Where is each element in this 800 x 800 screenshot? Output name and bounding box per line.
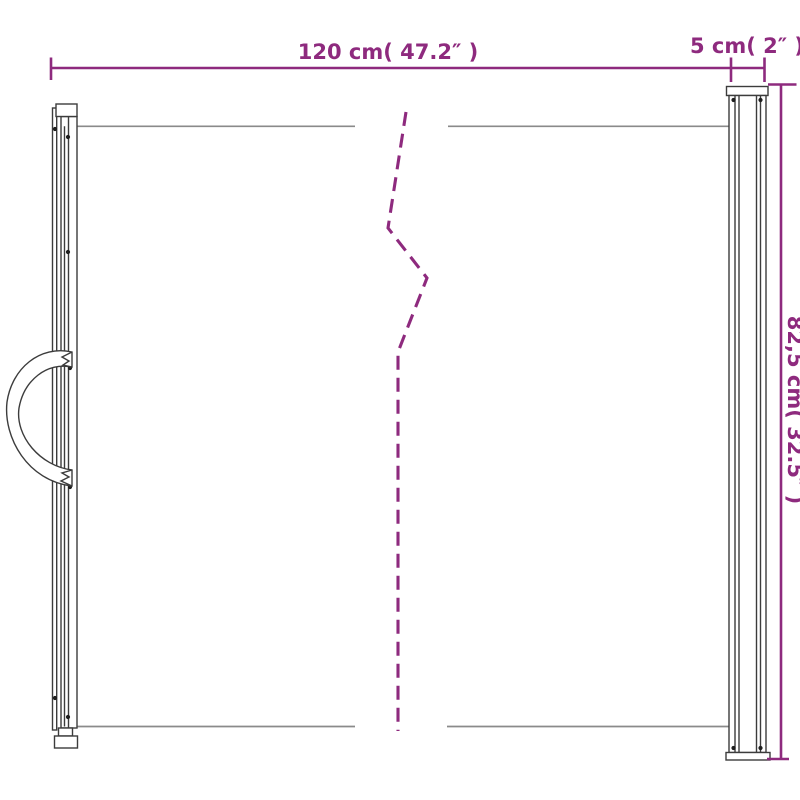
height-dimension-label: 82,5 cm( 32.5″ ) <box>782 300 800 520</box>
width-dimension-label: 120 cm( 47.2″ ) <box>288 41 488 64</box>
right-post <box>726 87 770 761</box>
left-post <box>53 104 78 748</box>
gate-drawing <box>0 0 800 800</box>
break-line <box>388 112 427 731</box>
left-post-foot <box>55 736 78 748</box>
product-dimension-diagram: 120 cm( 47.2″ ) 5 cm( 2″ ) 82,5 cm( 32.5… <box>0 0 800 800</box>
right-post-top-cap <box>727 87 769 96</box>
depth-dimension-label: 5 cm( 2″ ) <box>647 35 800 58</box>
right-post-bottom-cap <box>726 753 770 761</box>
left-post-top-cap <box>56 104 77 117</box>
